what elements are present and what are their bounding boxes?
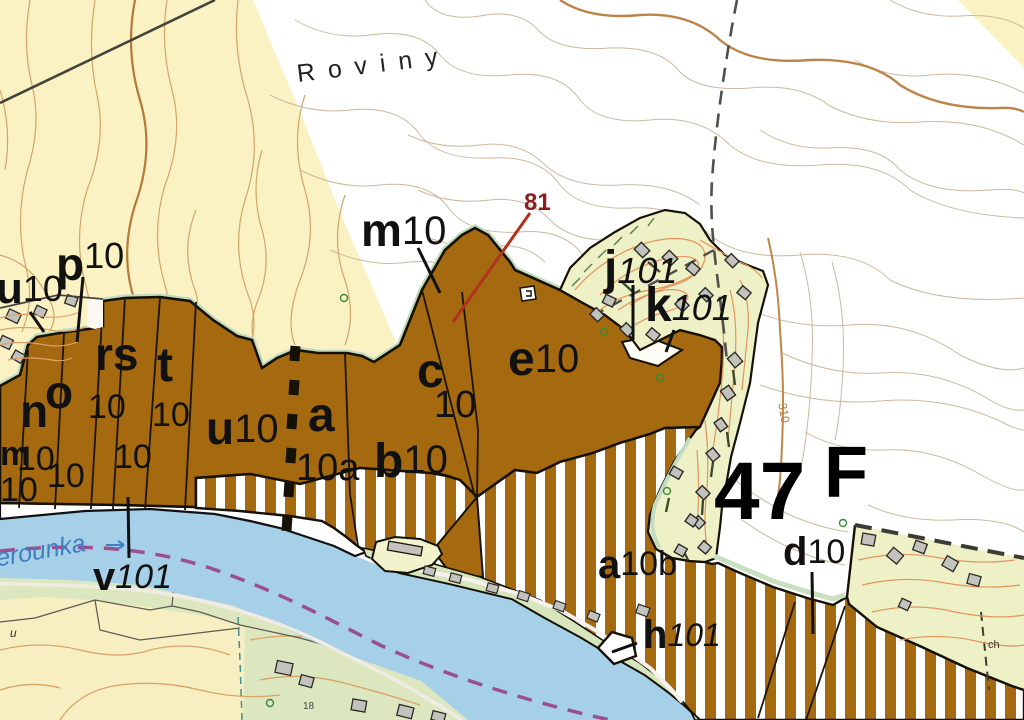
svg-text:10: 10	[88, 388, 126, 426]
svg-text:b10: b10	[374, 435, 448, 488]
svg-text:10: 10	[434, 384, 476, 426]
svg-text:n: n	[20, 385, 48, 437]
svg-text:a: a	[308, 389, 335, 442]
svg-text:a10b: a10b	[598, 543, 677, 587]
svg-text:m10: m10	[361, 204, 446, 256]
svg-text:F: F	[824, 433, 868, 513]
svg-text:81: 81	[524, 189, 551, 216]
svg-text:t: t	[157, 339, 173, 392]
svg-text:10: 10	[152, 396, 190, 434]
svg-text:k101: k101	[645, 279, 732, 332]
svg-text:10a: 10a	[296, 447, 360, 489]
svg-text:o: o	[45, 366, 73, 418]
svg-text:d10: d10	[783, 530, 845, 574]
svg-text:10: 10	[47, 457, 85, 495]
svg-text:h101: h101	[643, 613, 721, 657]
svg-text:rs: rs	[95, 328, 138, 380]
svg-text:18: 18	[303, 701, 315, 712]
svg-text:u10: u10	[206, 402, 279, 454]
svg-text:v101: v101	[93, 555, 172, 599]
svg-text:e10: e10	[508, 333, 579, 386]
svg-text:u10: u10	[0, 264, 63, 313]
svg-text:u: u	[10, 626, 17, 640]
svg-text:10: 10	[114, 438, 152, 476]
svg-text:10: 10	[0, 471, 38, 509]
svg-text:ch: ch	[988, 639, 1000, 651]
svg-text:47: 47	[714, 446, 805, 537]
